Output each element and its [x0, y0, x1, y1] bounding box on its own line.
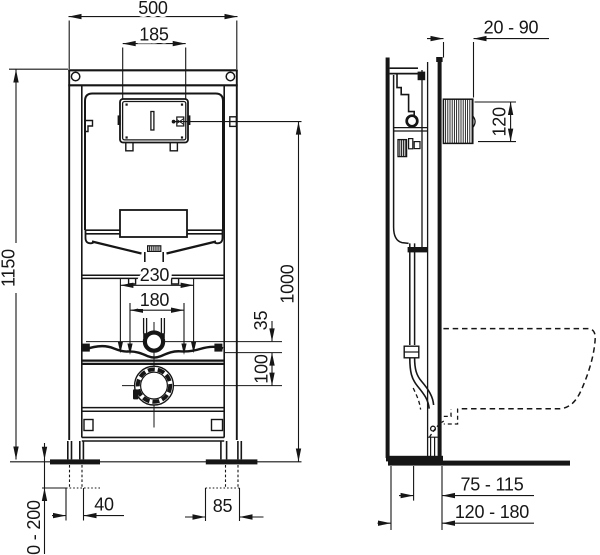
panel-slot	[151, 112, 154, 131]
dim-spigot-height-label: 120	[490, 107, 510, 137]
side-floor-line	[388, 461, 570, 466]
dim-frame-height-label: 1150	[0, 249, 19, 287]
internal-flush-pipe	[410, 243, 415, 345]
dim-wall-gap-label: 20 - 90	[484, 17, 539, 37]
flush-plate-panel	[118, 99, 191, 143]
dim-outlet-spacing: 100	[252, 353, 275, 386]
dim-pipe-offset: 35	[251, 311, 275, 342]
side-view: 20 - 90 120 75 - 115 120 - 180	[378, 17, 596, 530]
dim-frame-height: 1150	[0, 69, 68, 459]
dim-depth-range-label: 120 - 180	[455, 502, 529, 522]
flush-bend-spigot	[443, 99, 475, 143]
dim-outlet-to-front-label: 75 - 115	[460, 474, 523, 494]
front-view: 500 185 1150 1000 230	[0, 0, 302, 555]
dim-outlet-spacing-label: 100	[252, 354, 272, 384]
dim-spigot-height: 120	[475, 102, 517, 142]
dim-plate-center-height-label: 1000	[278, 264, 298, 303]
dim-overall-width-label: 500	[138, 0, 168, 18]
dim-upper-fixing-span-label: 230	[140, 265, 170, 285]
side-frame	[386, 57, 570, 466]
dim-right-foot-slot: 85	[185, 465, 264, 521]
fixing-hole-right	[226, 72, 234, 80]
dim-plate-cutout-width: 185	[123, 24, 186, 99]
dim-wall-gap: 20 - 90	[427, 17, 549, 97]
dim-left-foot-slot: 40	[52, 465, 124, 521]
dim-pipe-fixing-span-label: 180	[140, 290, 170, 310]
dim-depth-range: 120 - 180	[378, 502, 535, 526]
installation-frame-drawing: 500 185 1150 1000 230	[0, 0, 600, 555]
fixing-hole-left	[71, 72, 79, 80]
wc-bowl-outline	[430, 329, 596, 437]
valve-detail	[407, 116, 418, 127]
dim-plate-cutout-width-label: 185	[139, 24, 169, 44]
technical-drawing-sheet: 500 185 1150 1000 230	[0, 0, 600, 555]
service-opening	[120, 210, 187, 237]
dim-floor-adjustment-label: 0 - 200	[24, 500, 44, 555]
dim-right-foot-slot-label: 85	[213, 496, 233, 516]
dim-left-foot-slot-label: 40	[94, 495, 114, 515]
dim-pipe-offset-label: 35	[251, 311, 271, 331]
